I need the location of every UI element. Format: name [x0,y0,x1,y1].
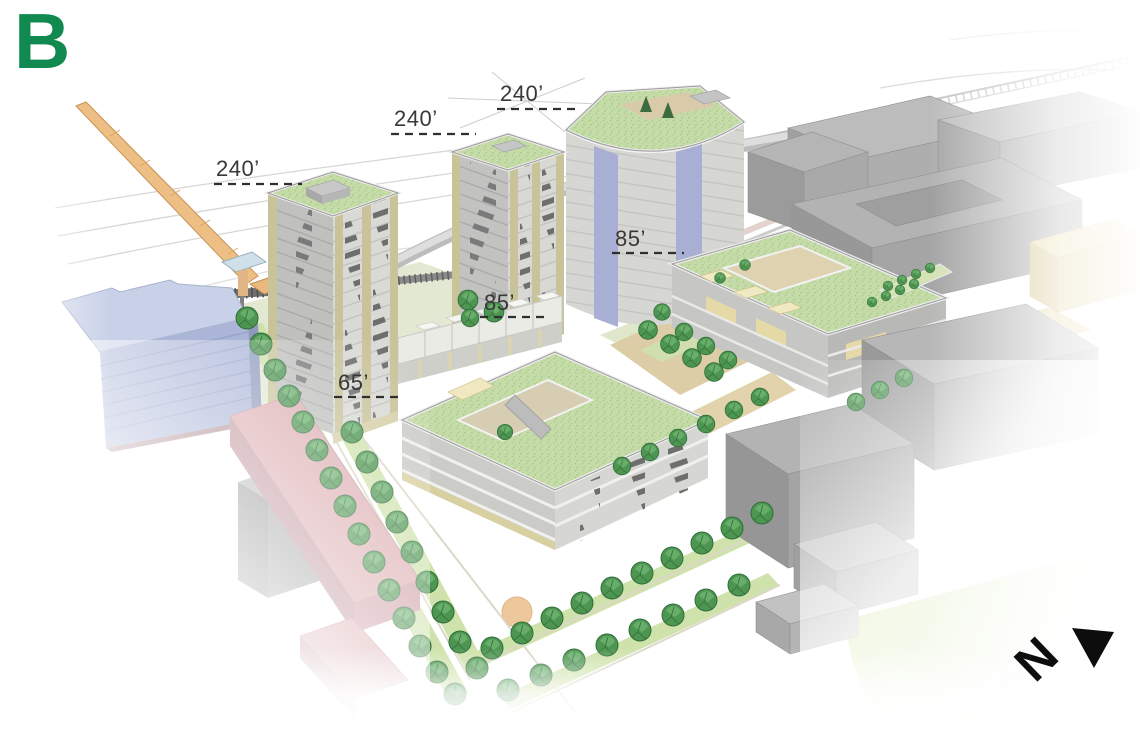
height-label-midrise-central: 85’ [484,290,515,316]
height-label-midrise-south: 65’ [338,370,369,396]
height-label-tower-west: 240’ [216,156,260,182]
height-label-tower-center: 240’ [394,106,438,132]
site-rendering [0,0,1140,730]
height-label-midrise-east: 85’ [615,226,646,252]
height-label-tower-east: 240’ [500,81,544,107]
figure-label: B [14,2,70,80]
massing-rendering-figure: N B 240’ 240’ 240’ 85’ 85’ 65’ [0,0,1140,730]
